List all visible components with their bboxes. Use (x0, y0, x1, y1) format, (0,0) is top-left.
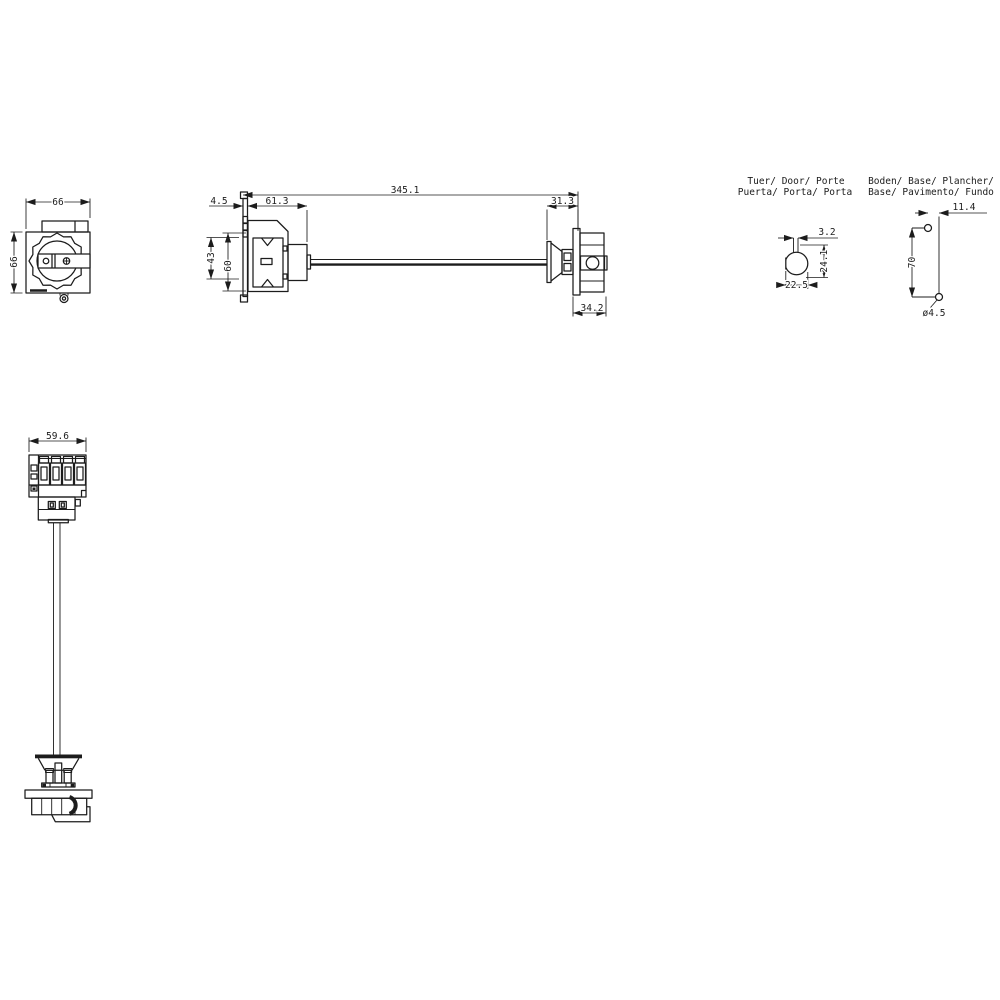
view-assembly-side: 345.1 4.5 61.3 43 60 31.3 34.2 (206, 185, 607, 317)
view-rotary-handle-front: 66 66 (9, 197, 90, 302)
dim-cutout-height: 24.1 (819, 249, 830, 272)
switch-body-side (248, 221, 311, 292)
door-coupling-and-handle-side (547, 229, 607, 296)
mounting-hole-lower (936, 294, 943, 301)
lower-body-and-shaft (38, 497, 80, 755)
door-label-line1: Tuer/ Door/ Porte (747, 176, 845, 187)
dim-cutout-width: 22.5 (785, 280, 808, 291)
dimensional-drawing: 66 66 (0, 0, 1000, 1000)
assembly-side-dimensions: 345.1 4.5 61.3 43 60 31.3 34.2 (206, 185, 606, 317)
dim-body-height: 60 (223, 260, 234, 272)
base-label-line2: Base/ Pavimento/ Fundo (868, 187, 994, 198)
dim-hole-spacing: 70 (907, 257, 918, 269)
detail-door-cutout: Tuer/ Door/ Porte Puerta/ Porta/ Porta 3… (738, 176, 852, 291)
switch-front-dimensions: 59.6 (29, 431, 86, 452)
dim-total-length: 345.1 (391, 185, 420, 196)
detail-base-drilling: Boden/ Base/ Plancher/ Base/ Pavimento/ … (868, 176, 994, 319)
dim-handle-width-side: 34.2 (581, 303, 604, 314)
door-cutout-dimensions: 3.2 24.1 22.5 (778, 227, 838, 291)
dim-handle-height: 66 (9, 256, 20, 268)
dim-body-depth: 61.3 (266, 196, 289, 207)
dim-hole-offset: 11.4 (953, 202, 976, 213)
technical-drawing-canvas: 66 66 (0, 0, 1000, 1000)
door-cutout-geometry (780, 238, 808, 275)
mounting-bracket (241, 192, 248, 302)
terminal-blocks (39, 457, 86, 486)
extension-shaft (311, 260, 548, 265)
view-switch-front-shaft: 59.6 (25, 431, 92, 822)
base-drilling-dimensions: 11.4 70 ø4.5 (907, 202, 987, 319)
dim-bracket-thickness: 4.5 (210, 196, 227, 207)
dim-switch-width: 59.6 (46, 431, 69, 442)
lower-coupling-and-handle (25, 755, 92, 822)
mounting-hole-upper (925, 225, 932, 232)
handle-front-geometry (26, 221, 90, 303)
dim-inner-height: 43 (206, 252, 217, 263)
dim-slot-width: 3.2 (818, 227, 835, 238)
door-label-line2: Puerta/ Porta/ Porta (738, 187, 852, 198)
base-label-line1: Boden/ Base/ Plancher/ (868, 176, 994, 187)
dim-hole-diameter: ø4.5 (923, 308, 946, 319)
dim-handle-width: 66 (52, 197, 64, 208)
handle-grip-profile (70, 797, 76, 814)
dim-handle-depth: 31.3 (551, 196, 574, 207)
padlock-eyelet (60, 295, 68, 303)
